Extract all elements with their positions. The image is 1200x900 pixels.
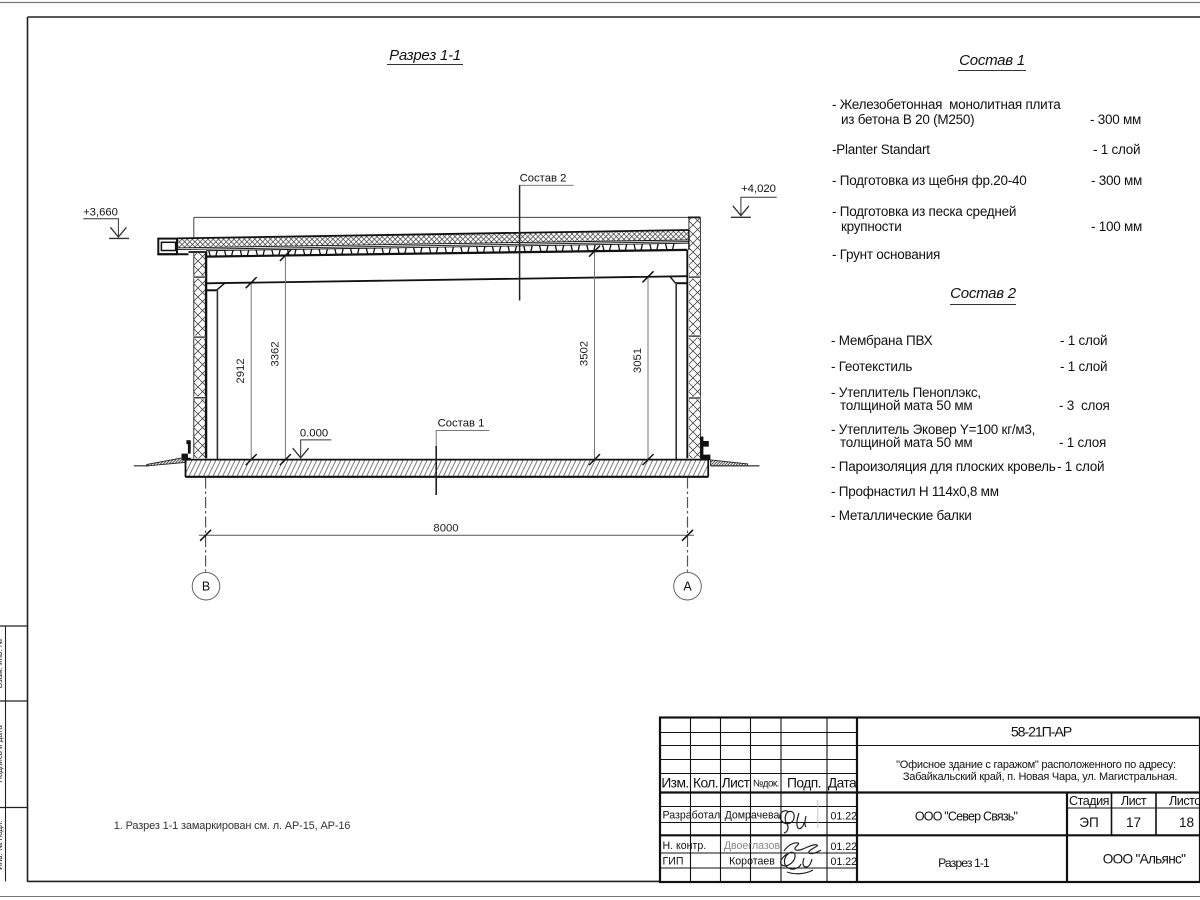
svg-text:01.22: 01.22	[831, 810, 858, 822]
svg-text:ЭП: ЭП	[1079, 815, 1099, 830]
svg-text:Подп.: Подп.	[787, 776, 821, 791]
svg-text:Разработал: Разработал	[663, 809, 721, 821]
svg-text:+3,660: +3,660	[83, 206, 118, 218]
svg-text:Подпись и дата: Подпись и дата	[0, 725, 4, 783]
svg-text:01.22: 01.22	[831, 856, 858, 868]
svg-text:0.000: 0.000	[300, 428, 328, 440]
svg-text:ГИП: ГИП	[663, 855, 684, 867]
svg-text:Листов: Листов	[1169, 794, 1200, 808]
svg-text:Разрез 1-1: Разрез 1-1	[938, 856, 990, 870]
svg-text:Состав 2: Состав 2	[520, 172, 567, 184]
svg-text:Взам. инв. №: Взам. инв. №	[0, 638, 4, 688]
svg-text:3051: 3051	[632, 348, 644, 373]
svg-text:В: В	[202, 579, 210, 593]
svg-text:01.22: 01.22	[831, 841, 858, 853]
svg-text:Кол.: Кол.	[693, 776, 718, 791]
svg-text:А: А	[683, 579, 692, 593]
svg-text:Коротаев: Коротаев	[729, 855, 775, 867]
svg-text:+4,020: +4,020	[741, 183, 776, 195]
svg-text:Инв. № подл.: Инв. № подл.	[0, 820, 4, 870]
svg-text:Лист: Лист	[1121, 794, 1147, 808]
svg-text:Лист: Лист	[722, 776, 751, 791]
svg-text:ООО "Альянс": ООО "Альянс"	[1103, 852, 1186, 867]
svg-text:№док.: №док.	[753, 779, 779, 790]
svg-text:Забайкальский край, п. Новая Ч: Забайкальский край, п. Новая Чара, ул. М…	[903, 771, 1178, 783]
svg-text:2912: 2912	[235, 358, 247, 383]
svg-text:Изм.: Изм.	[661, 776, 688, 791]
svg-text:"Офисное здание с гаражом" рас: "Офисное здание с гаражом" расположенног…	[896, 759, 1176, 771]
svg-text:3502: 3502	[578, 341, 590, 366]
svg-text:3362: 3362	[269, 341, 281, 366]
svg-text:Домрачева: Домрачева	[725, 809, 780, 821]
svg-text:Двоеглазов: Двоеглазов	[724, 840, 781, 852]
svg-text:Дата: Дата	[828, 776, 857, 791]
svg-text:58-21П-АР: 58-21П-АР	[1011, 725, 1072, 741]
svg-text:ООО "Север Связь": ООО "Север Связь"	[915, 810, 1018, 824]
svg-text:Н. контр.: Н. контр.	[663, 840, 707, 852]
svg-text:17: 17	[1126, 815, 1141, 830]
svg-text:Состав 1: Состав 1	[438, 417, 485, 429]
svg-text:Стадия: Стадия	[1069, 794, 1109, 808]
svg-text:18: 18	[1179, 815, 1194, 830]
svg-text:8000: 8000	[433, 522, 458, 534]
